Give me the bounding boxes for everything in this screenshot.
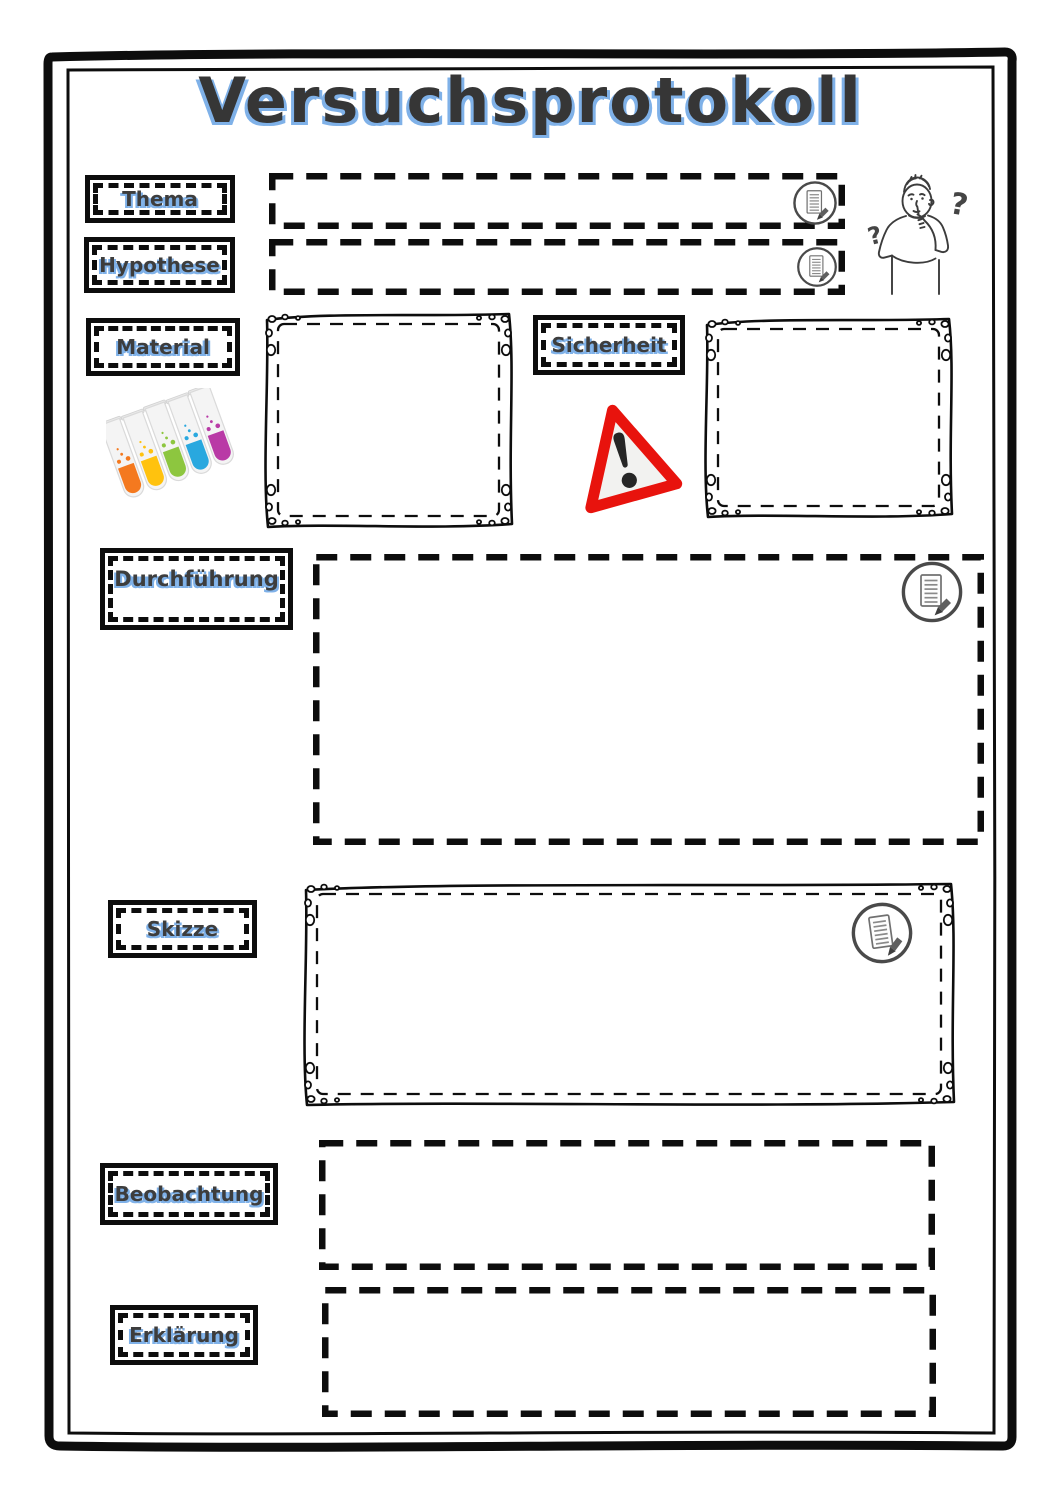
sicherheit-input-box[interactable] [699,312,958,523]
edit-note-icon [846,897,918,969]
sicherheit-label-box: Sicherheit [533,315,685,375]
beobachtung-input-box[interactable] [318,1139,936,1271]
durchfuehrung-label-box: Durchführung [100,548,293,630]
material-input-box[interactable] [259,307,518,533]
thema-label-box: Thema [85,175,235,223]
edit-note-icon [792,180,838,226]
question-mark-right-icon: ? [947,186,970,223]
edit-note-icon [900,560,964,624]
hypothese-label: Hypothese [99,253,220,277]
thema-input-box[interactable] [268,172,846,230]
question-mark-left-icon: ? [865,220,885,251]
worksheet-page: Versuchsprotokoll Thema ? ? Hypothese [0,0,1061,1500]
material-label: Material [116,335,210,359]
skizze-label-box: Skizze [108,900,257,958]
thinking-person-illustration: ? ? [862,172,972,300]
page-title: Versuchsprotokoll [0,64,1061,137]
hypothese-label-box: Hypothese [84,237,235,293]
hypothese-input-box[interactable] [268,238,846,296]
test-tubes-icon [106,388,238,512]
beobachtung-label: Beobachtung [115,1182,264,1206]
erklaerung-label-box: Erklärung [110,1305,258,1365]
sicherheit-label: Sicherheit [552,333,667,357]
erklaerung-input-box[interactable] [321,1286,937,1418]
durchfuehrung-input-box[interactable] [312,553,985,846]
skizze-label: Skizze [147,917,218,941]
thema-label: Thema [122,187,198,211]
material-label-box: Material [86,318,240,376]
edit-note-icon [796,246,838,288]
durchfuehrung-label: Durchführung [114,567,278,591]
erklaerung-label: Erklärung [129,1323,239,1347]
beobachtung-label-box: Beobachtung [100,1163,278,1225]
